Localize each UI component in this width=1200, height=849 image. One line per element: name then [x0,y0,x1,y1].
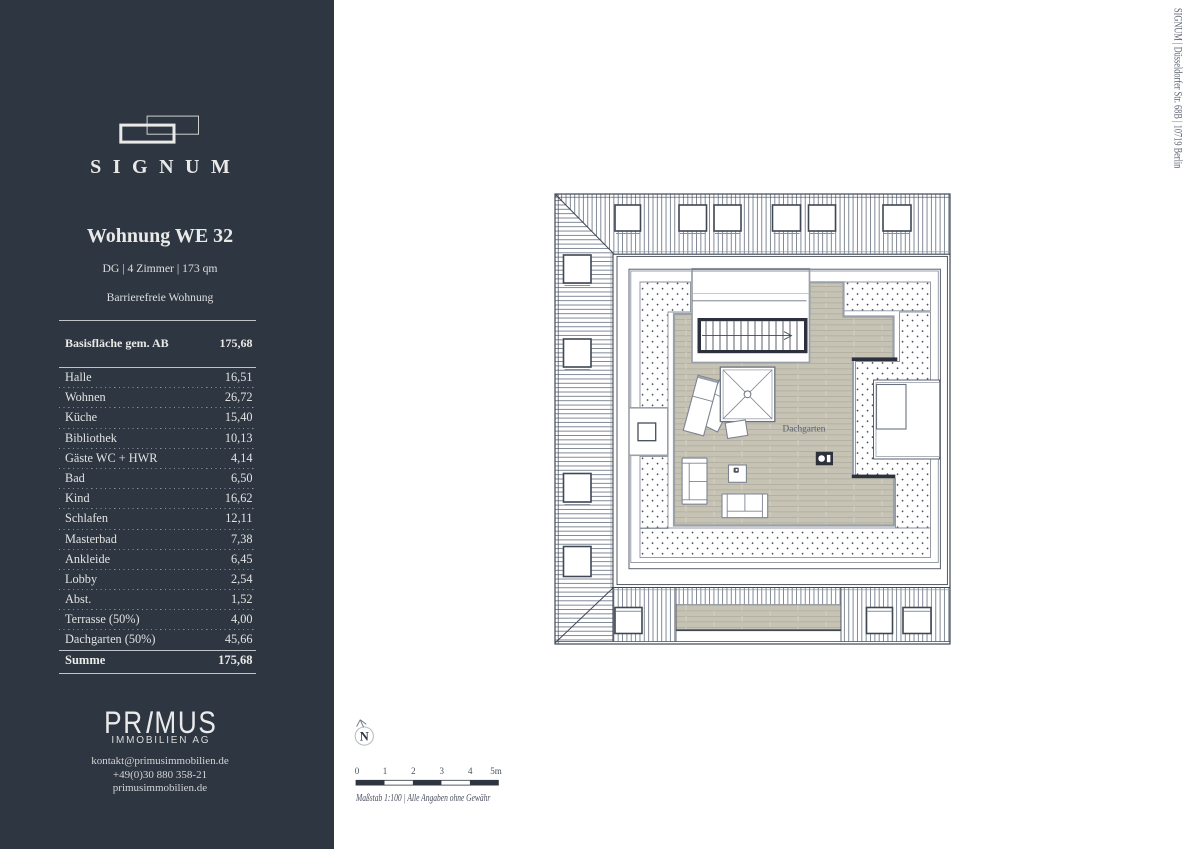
svg-text:0: 0 [355,766,360,776]
svg-text:2: 2 [411,766,416,776]
svg-text:Dachgarten: Dachgarten [783,425,826,435]
svg-text:SIGNUM | Düsseldorfer Str. 68B: SIGNUM | Düsseldorfer Str. 68B | 10719 B… [1171,8,1183,168]
svg-text:4: 4 [468,766,473,776]
svg-text:Maßstab 1:100 | Alle Angaben o: Maßstab 1:100 | Alle Angaben ohne Gewähr [355,792,491,803]
svg-text:1: 1 [383,766,388,776]
svg-text:3: 3 [440,766,445,776]
svg-text:N: N [360,730,369,744]
svg-text:5m: 5m [490,766,502,776]
